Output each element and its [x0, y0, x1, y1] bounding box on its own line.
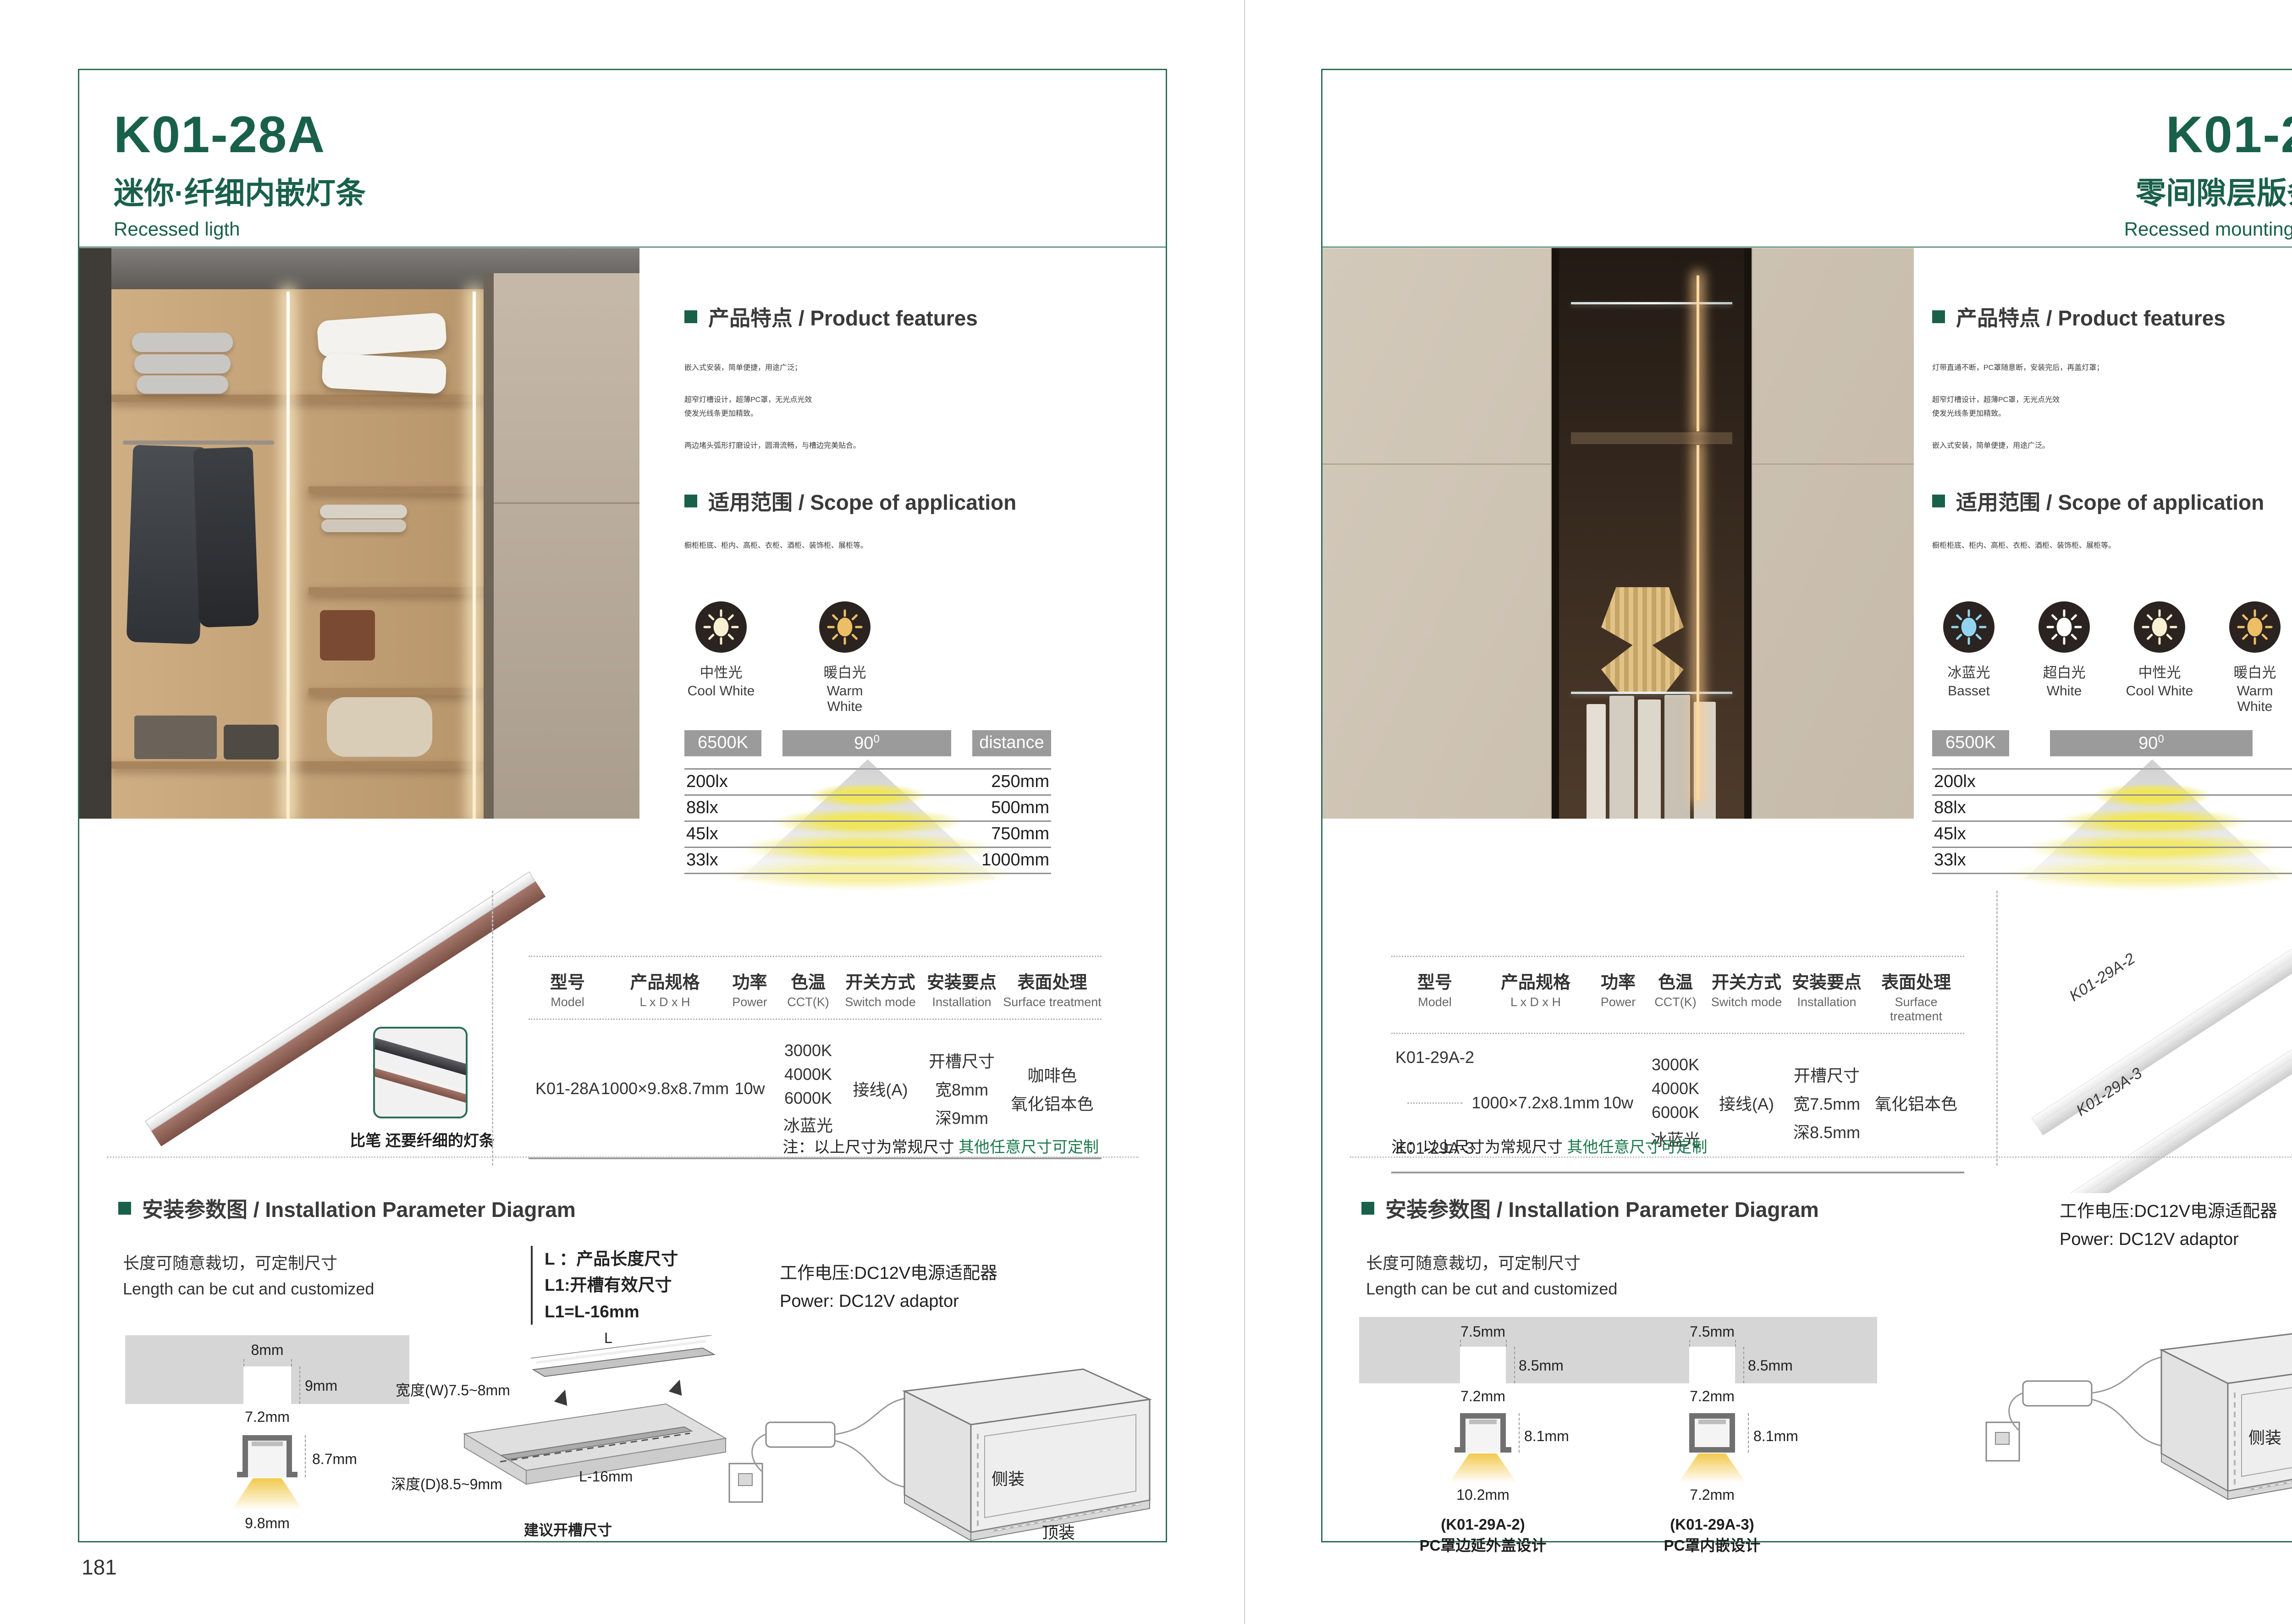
section-caption: (K01-29A-2) PC罩边延外盖设计 — [1414, 1514, 1552, 1556]
light-icon-warm-white: 暖白光 Warm White — [808, 601, 882, 715]
header-divider — [1322, 247, 2292, 248]
led-profile-render — [2013, 985, 2292, 1193]
distance-bar: distance — [972, 730, 1051, 756]
iso-board-drawing — [446, 1335, 730, 1537]
cell-model: K01-28A — [529, 1020, 606, 1157]
iso-groove-diagram: L 宽度(W)7.5~8mm 深度(D)8.5~9mm L-16mm 建议开槽尺… — [446, 1335, 730, 1537]
cell-install: 开槽尺寸宽7.5mm深8.5mm — [1785, 1034, 1868, 1172]
photometric-row: 33lx1000mm — [684, 848, 1051, 874]
section-separator — [107, 1156, 1138, 1158]
page-181: K01-28A 迷你·纤细内嵌灯条 Recessed ligth — [78, 69, 1167, 1542]
cabinet-mount-diagram: 侧装 顶装 — [721, 1349, 1170, 1541]
photometric-row: 88lx500mm — [1932, 796, 2292, 822]
feature-line: 超窄灯槽设计，超薄PC罩，无光点光效 — [684, 393, 1134, 404]
header-divider — [79, 247, 1166, 248]
install-heading: 安装参数图 / Installation Parameter Diagram — [118, 1193, 576, 1223]
cell-surface: 氧化铝本色 — [1868, 1034, 1964, 1172]
sun-icon — [2229, 601, 2281, 653]
light-color-icons: 中性光 Cool White 暖白光 Warm White — [684, 601, 1134, 715]
length-legend: L ：产品长度尺寸 L1:开槽有效尺寸 L1=L-16mm — [531, 1246, 678, 1325]
feature-line: 使发光线条更加精致。 — [684, 407, 1134, 418]
sun-icon — [2039, 601, 2090, 653]
section-bullet-icon — [118, 1202, 131, 1215]
subtitle-en: Recessed mounting LED light — [2124, 218, 2292, 240]
center-fold-line — [1244, 0, 1245, 1624]
subtitle-cn: 零间隙层版条形灯 — [2124, 169, 2292, 213]
section-bullet-icon — [684, 495, 697, 507]
section-bullet-icon — [1361, 1202, 1374, 1215]
light-icon-ice-blue: 冰蓝光 Basset — [1932, 601, 2005, 715]
led-profile-render — [145, 871, 546, 1146]
cross-section-diagrams: 7.5mm 8.5mm 7.2mm 8.1mm 10.2mm (K01-29A-… — [1359, 1303, 1932, 1541]
led-strip — [1697, 275, 1699, 431]
light-icon-warm-white: 暖白光 Warm White — [2218, 601, 2292, 715]
cell-power: 10w — [723, 1020, 776, 1157]
power-note: 工作电压:DC12V电源适配器 Power: DC12V adaptor — [2060, 1198, 2277, 1254]
features-heading: 产品特点 / Product features — [1932, 302, 2292, 332]
led-strip — [286, 292, 290, 819]
beam-angle-bar: 900 — [782, 730, 951, 756]
light-icon-white: 超白光 White — [2028, 601, 2101, 715]
page-182: K01-29A 零间隙层版条形灯 Recessed mounting LED l… — [1321, 69, 2292, 1542]
led-strip — [1697, 445, 1699, 800]
photometric-row: 88lx500mm — [684, 796, 1051, 822]
product-render: 比笔 还要纤细的灯条 — [130, 895, 533, 1152]
sliding-door — [484, 273, 639, 819]
model-title: K01-29A — [2124, 109, 2292, 160]
photometric-row: 33lx1000mm — [1932, 848, 2292, 874]
section-bullet-icon — [1932, 310, 1945, 323]
detail-inset — [373, 1027, 468, 1118]
sun-icon — [819, 601, 871, 653]
feature-line: 嵌入式安装，简单便捷，用途广泛； — [684, 361, 1134, 372]
features-heading: 产品特点 / Product features — [684, 302, 1134, 332]
section-caption: (K01-29A-3) PC罩内嵌设计 — [1643, 1514, 1781, 1556]
model-title: K01-28A — [114, 109, 366, 160]
display-niche — [1552, 248, 1752, 819]
render-label: K01-29A-2 — [2066, 950, 2138, 1005]
cct-bar: 6500K — [1932, 730, 2009, 756]
features-block: 产品特点 / Product features 灯带直通不断，PC罩随意断，安装… — [1932, 302, 2292, 874]
sun-icon — [1943, 601, 1994, 653]
subtitle-en: Recessed ligth — [114, 218, 366, 240]
scope-line: 橱柜柜底、柜内、高柜、衣柜、酒柜、装饰柜、展柜等。 — [684, 539, 1134, 550]
cabinet-drawing — [1978, 1308, 2292, 1500]
cell-size: 1000×9.8x8.7mm — [606, 1020, 723, 1157]
install-heading: 安装参数图 / Installation Parameter Diagram — [1361, 1193, 1819, 1223]
photometric-row: 45lx750mm — [1932, 822, 2292, 848]
features-block: 产品特点 / Product features 嵌入式安装，简单便捷，用途广泛；… — [684, 302, 1134, 874]
page-header: K01-29A 零间隙层版条形灯 Recessed mounting LED l… — [2124, 109, 2292, 240]
light-icon-cool-white: 中性光 Cool White — [2123, 601, 2196, 715]
spec-table: 型号Model 产品规格L x D x H 功率Power 色温CCT(K) 开… — [529, 956, 1102, 1159]
light-icon-cool-white: 中性光 Cool White — [684, 601, 758, 715]
feature-line: 嵌入式安装，简单便捷，用途广泛。 — [1932, 439, 2292, 450]
beam-angle-bar: 900 — [2050, 730, 2253, 756]
customization-note: 注：以上尺寸为常规尺寸 其他任意尺寸可定制 — [783, 1134, 1099, 1157]
cross-section-diagram: 8mm 9mm 7.2mm 8.7mm 9.8mm — [125, 1317, 446, 1532]
glass-shelf — [1571, 692, 1732, 694]
cabinet-drawing — [721, 1349, 1170, 1541]
cell-switch: 接线(A) — [1708, 1034, 1785, 1172]
pleated-vase — [1601, 587, 1684, 693]
led-strip — [473, 292, 476, 819]
section-separator — [1350, 1156, 2292, 1158]
cabinet-mount-diagram: 侧装 顶装 — [1978, 1308, 2292, 1500]
photometric-row: 45lx750mm — [684, 822, 1051, 848]
cct-bar: 6500K — [684, 730, 761, 756]
glass-shelf — [1571, 302, 1732, 304]
feature-line: 两边堵头弧形打磨设计，圆滑流畅，与槽边完美贴合。 — [684, 439, 1134, 450]
scope-heading: 适用范围 / Scope of application — [684, 486, 1134, 516]
catalog-spread: { "common": { "section_features": "产品特点 … — [0, 0, 2292, 1624]
section-bullet-icon — [1932, 495, 1945, 507]
photometric-row: 200lx250mm — [684, 770, 1051, 796]
photometric-chart: 6500K 900 distance 200lx250mm 88lx500mm … — [684, 730, 1051, 874]
scope-line: 橱柜柜底、柜内、高柜、衣柜、酒柜、装饰柜、展柜等。 — [1932, 539, 2292, 550]
section-bullet-icon — [684, 310, 697, 323]
cut-note: 长度可随意裁切，可定制尺寸 Length can be cut and cust… — [1366, 1250, 1617, 1302]
power-note: 工作电压:DC12V电源适配器 Power: DC12V adaptor — [780, 1260, 997, 1316]
sun-icon — [695, 601, 747, 653]
feature-line: 使发光线条更加精致。 — [1932, 407, 2292, 418]
product-render: K01-29A-2 K01-29A-3 — [2010, 891, 2292, 1193]
scope-heading: 适用范围 / Scope of application — [1932, 486, 2292, 516]
customization-note: 注：以上尺寸为常规尺寸 其他任意尺寸可定制 — [1391, 1134, 1707, 1157]
vertical-divider — [492, 891, 493, 1166]
page-number-left: 181 — [82, 1555, 117, 1580]
vertical-divider — [1996, 891, 1998, 1166]
cut-note: 长度可随意裁切，可定制尺寸 Length can be cut and cust… — [123, 1250, 374, 1302]
render-caption: 比笔 还要纤细的灯条 — [335, 1128, 509, 1151]
photometric-row: 200lx250mm — [1932, 770, 2292, 796]
hero-photo-cabinet — [1322, 248, 1914, 819]
page-header: K01-28A 迷你·纤细内嵌灯条 Recessed ligth — [114, 109, 366, 240]
light-color-icons: 冰蓝光 Basset 超白光 White 中性光 Cool White — [1932, 601, 2292, 715]
sun-icon — [2134, 601, 2185, 653]
hero-photo-wardrobe — [79, 248, 639, 819]
subtitle-cn: 迷你·纤细内嵌灯条 — [114, 169, 366, 213]
feature-line: 灯带直通不断，PC罩随意断，安装完后，再盖灯罩； — [1932, 361, 2292, 372]
feature-line: 超窄灯槽设计，超薄PC罩，无光点光效 — [1932, 393, 2292, 404]
photometric-chart: 6500K 900 distance 200lx250mm 88lx500mm … — [1932, 730, 2292, 874]
